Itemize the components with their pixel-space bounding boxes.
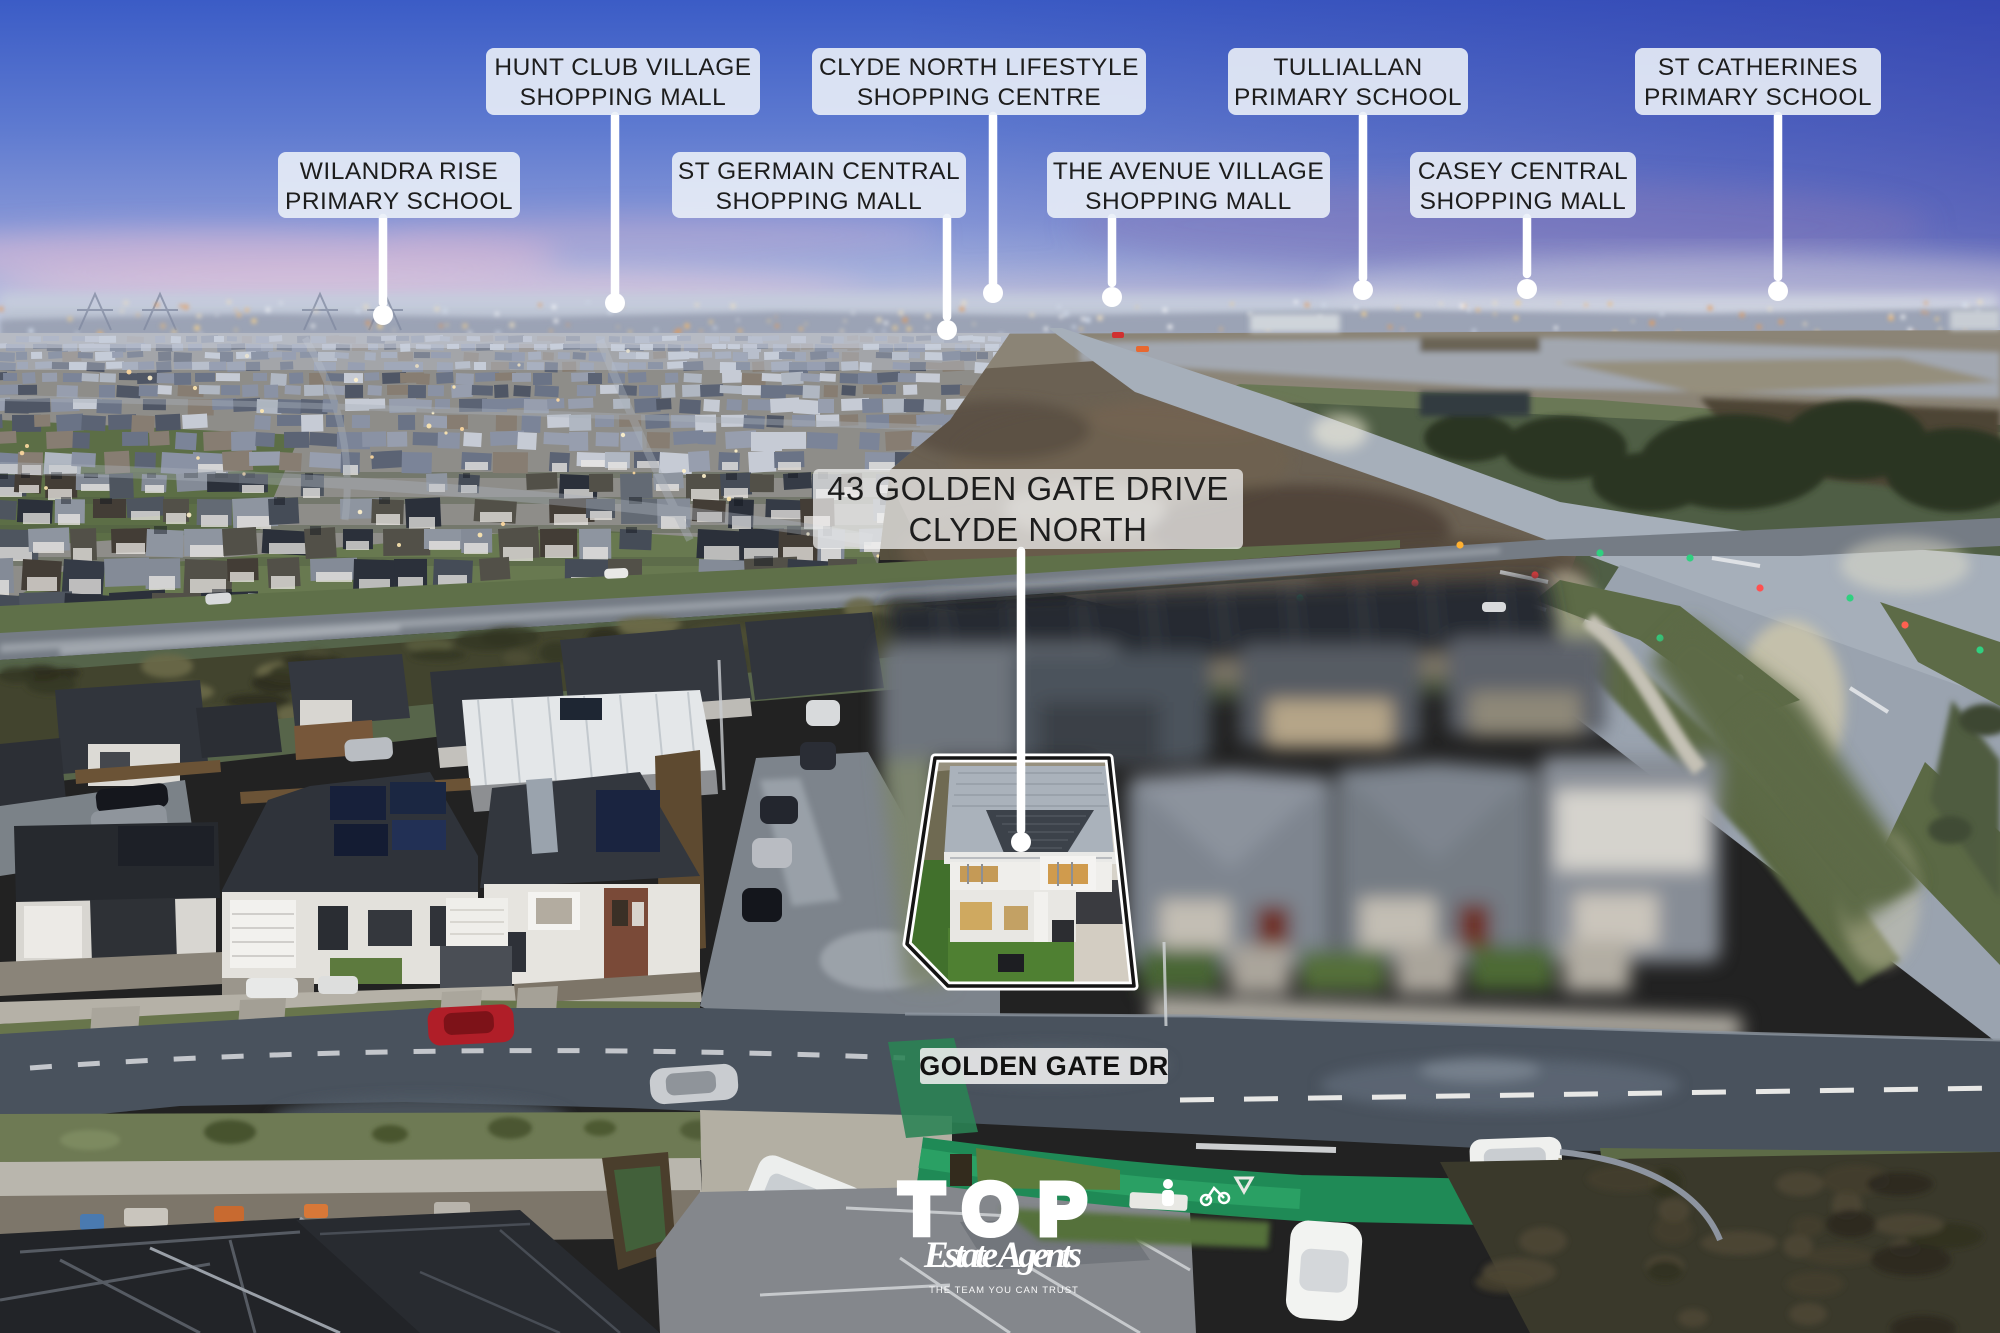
svg-text:SHOPPING MALL: SHOPPING MALL <box>1085 188 1292 215</box>
svg-text:PRIMARY SCHOOL: PRIMARY SCHOOL <box>1234 84 1462 111</box>
svg-text:SHOPPING CENTRE: SHOPPING CENTRE <box>857 84 1101 111</box>
svg-text:THE TEAM YOU CAN TRUST: THE TEAM YOU CAN TRUST <box>929 1285 1079 1296</box>
svg-text:CASEY CENTRAL: CASEY CENTRAL <box>1418 158 1628 185</box>
svg-text:ST CATHERINES: ST CATHERINES <box>1658 54 1858 81</box>
svg-text:Estate Agents: Estate Agents <box>923 1235 1082 1276</box>
svg-text:CLYDE NORTH: CLYDE NORTH <box>909 511 1148 548</box>
svg-text:THE AVENUE VILLAGE: THE AVENUE VILLAGE <box>1053 158 1324 185</box>
svg-text:PRIMARY SCHOOL: PRIMARY SCHOOL <box>285 188 513 215</box>
svg-text:SHOPPING MALL: SHOPPING MALL <box>1420 188 1627 215</box>
svg-text:SHOPPING MALL: SHOPPING MALL <box>520 84 727 111</box>
svg-text:ST GERMAIN CENTRAL: ST GERMAIN CENTRAL <box>678 158 960 185</box>
svg-text:SHOPPING MALL: SHOPPING MALL <box>716 188 923 215</box>
svg-text:WILANDRA RISE: WILANDRA RISE <box>300 158 498 185</box>
svg-text:PRIMARY SCHOOL: PRIMARY SCHOOL <box>1644 84 1872 111</box>
svg-text:TULLIALLAN: TULLIALLAN <box>1273 54 1422 81</box>
svg-text:HUNT CLUB VILLAGE: HUNT CLUB VILLAGE <box>494 54 751 81</box>
svg-text:43 GOLDEN GATE DRIVE: 43 GOLDEN GATE DRIVE <box>827 470 1229 507</box>
svg-text:GOLDEN GATE DR: GOLDEN GATE DR <box>919 1051 1169 1081</box>
svg-text:CLYDE NORTH LIFESTYLE: CLYDE NORTH LIFESTYLE <box>819 54 1139 81</box>
